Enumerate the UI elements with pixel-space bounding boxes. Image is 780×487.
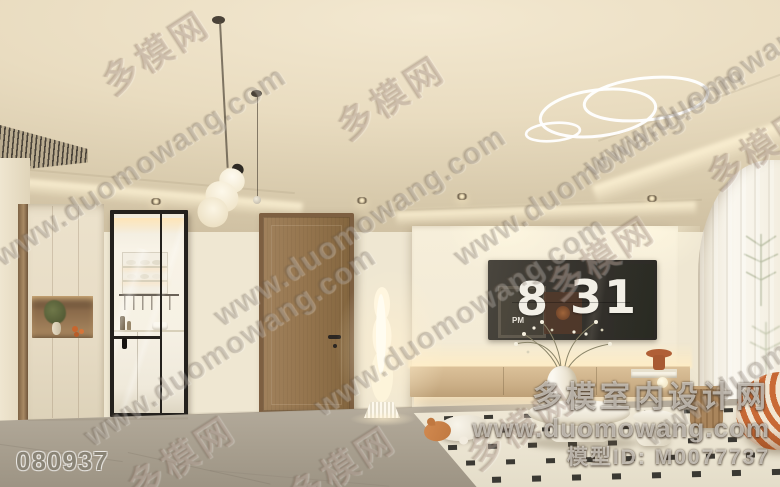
niche-fruit	[79, 329, 84, 334]
pendant-bulb-tip	[253, 196, 261, 204]
kitchen-door-handle	[122, 338, 127, 349]
book-stack	[631, 369, 677, 378]
plush-paw	[459, 436, 469, 445]
wood-door-bevel	[271, 225, 342, 405]
pendant-cord	[257, 96, 258, 198]
brand-model-id: 模型ID: M0077737	[472, 444, 770, 471]
kitchen-door-stile	[160, 214, 162, 413]
floor-lamp-floor-glow	[350, 412, 416, 426]
flip-clock-split-line	[512, 302, 630, 303]
brand-site-title: 多模室内设计网	[472, 381, 770, 414]
niche-plant	[44, 300, 66, 324]
interior-render-image: 8 31 PM	[0, 0, 780, 487]
brand-site-url: www.duomowang.com	[472, 414, 770, 444]
terracotta-candle-stem	[653, 355, 665, 370]
niche-vase	[52, 322, 61, 335]
ceiling-ring-lamp	[520, 55, 715, 155]
floor-lamp-wavy-shade	[366, 284, 398, 406]
brand-watermark-block: 多模室内设计网 www.duomowang.com 模型ID: M0077737	[472, 381, 770, 471]
kitchen-door-glass	[114, 214, 184, 413]
wood-trim-strip	[18, 204, 28, 422]
niche-fruit	[74, 332, 79, 337]
render-code-label: 080937	[16, 446, 109, 477]
kitchen-ceiling-glow	[114, 218, 184, 234]
